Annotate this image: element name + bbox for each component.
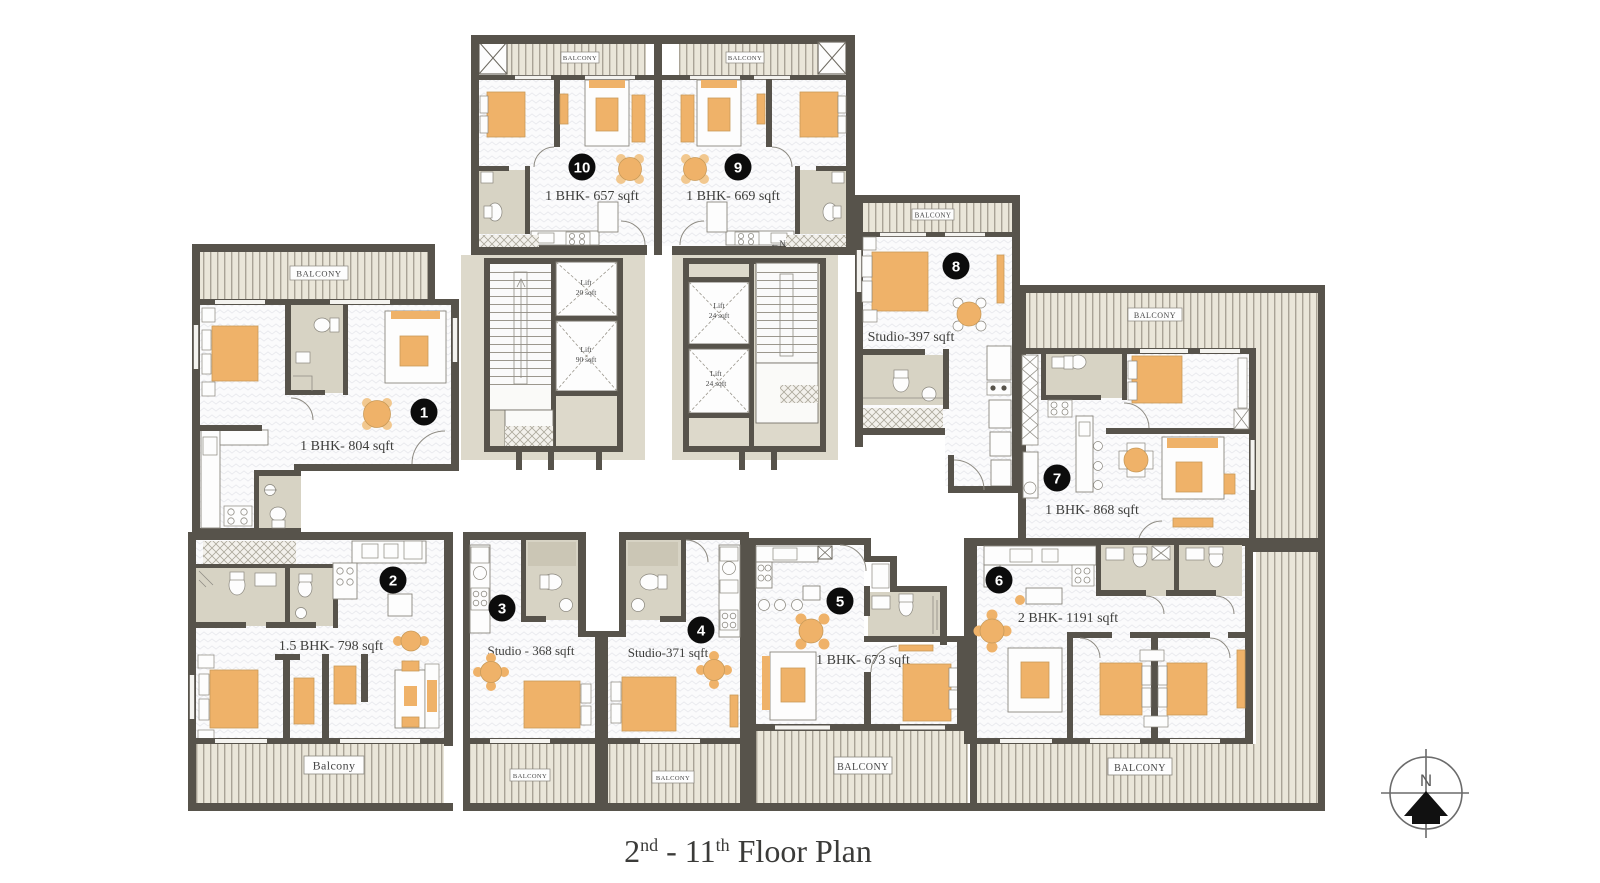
svg-text:BALCONY: BALCONY [296, 269, 341, 279]
svg-text:24 sqft: 24 sqft [706, 379, 728, 388]
svg-text:1 BHK- 804 sqft: 1 BHK- 804 sqft [300, 439, 394, 454]
svg-text:2: 2 [389, 573, 397, 590]
svg-text:24 sqft: 24 sqft [709, 311, 731, 320]
svg-text:Balcony: Balcony [313, 759, 356, 773]
svg-text:BALCONY: BALCONY [1114, 763, 1166, 774]
svg-text:7: 7 [1053, 471, 1061, 488]
svg-text:1.5 BHK- 798 sqft: 1.5 BHK- 798 sqft [279, 639, 383, 654]
svg-text:10: 10 [574, 160, 591, 177]
svg-text:Studio-397 sqft: Studio-397 sqft [868, 330, 955, 345]
svg-text:1: 1 [420, 405, 428, 422]
svg-text:1 BHK- 657 sqft: 1 BHK- 657 sqft [545, 189, 639, 204]
svg-text:3: 3 [498, 601, 506, 618]
svg-text:9: 9 [734, 160, 742, 177]
svg-text:Lift: Lift [713, 301, 725, 310]
svg-text:6: 6 [995, 573, 1003, 590]
svg-text:BALCONY: BALCONY [1134, 311, 1176, 320]
svg-text:5: 5 [836, 594, 844, 611]
svg-text:BALCONY: BALCONY [915, 212, 952, 220]
svg-text:Studio - 368 sqft: Studio - 368 sqft [487, 643, 574, 658]
svg-text:90 sqft: 90 sqft [576, 355, 598, 364]
svg-text:Lift: Lift [580, 345, 592, 354]
svg-text:4: 4 [697, 623, 706, 640]
svg-text:2nd - 11th Floor Plan: 2nd - 11th Floor Plan [624, 833, 872, 869]
svg-text:Lift: Lift [580, 278, 592, 287]
svg-text:BALCONY: BALCONY [563, 55, 597, 62]
svg-text:N: N [1420, 771, 1432, 790]
svg-text:Lift: Lift [710, 369, 722, 378]
svg-text:1 BHK- 669 sqft: 1 BHK- 669 sqft [686, 189, 780, 204]
svg-text:Studio-371 sqft: Studio-371 sqft [628, 645, 709, 660]
svg-text:8: 8 [952, 259, 960, 276]
svg-text:BALCONY: BALCONY [656, 775, 690, 782]
svg-text:20 sqft: 20 sqft [576, 288, 598, 297]
svg-text:BALCONY: BALCONY [728, 55, 762, 62]
svg-text:2 BHK- 1191 sqft: 2 BHK- 1191 sqft [1018, 611, 1118, 626]
svg-text:BALCONY: BALCONY [513, 773, 547, 780]
svg-text:1 BHK- 673 sqft: 1 BHK- 673 sqft [816, 653, 910, 668]
svg-text:1 BHK- 868 sqft: 1 BHK- 868 sqft [1045, 503, 1139, 518]
svg-text:←N: ←N [770, 239, 786, 249]
svg-text:BALCONY: BALCONY [837, 762, 889, 773]
